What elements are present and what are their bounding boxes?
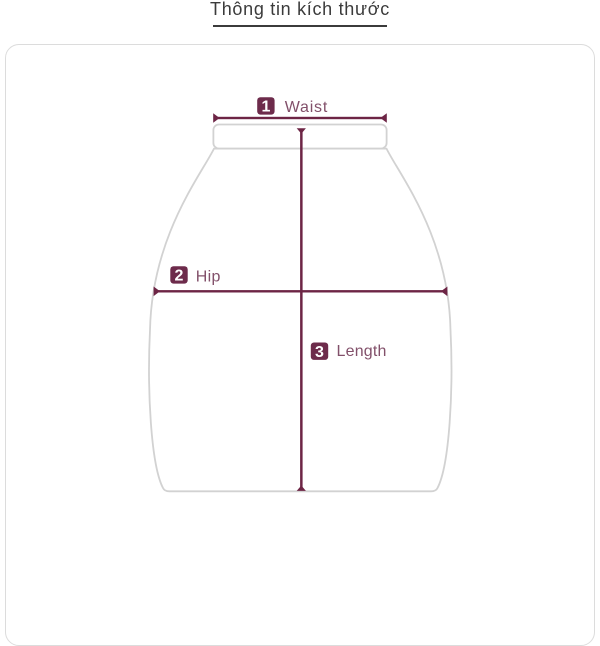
svg-text:1: 1 [261, 99, 270, 116]
svg-text:Hip: Hip [196, 269, 221, 286]
svg-text:Waist: Waist [285, 99, 328, 116]
svg-text:Length: Length [337, 343, 387, 360]
svg-text:2: 2 [175, 268, 184, 285]
svg-text:3: 3 [315, 344, 324, 361]
